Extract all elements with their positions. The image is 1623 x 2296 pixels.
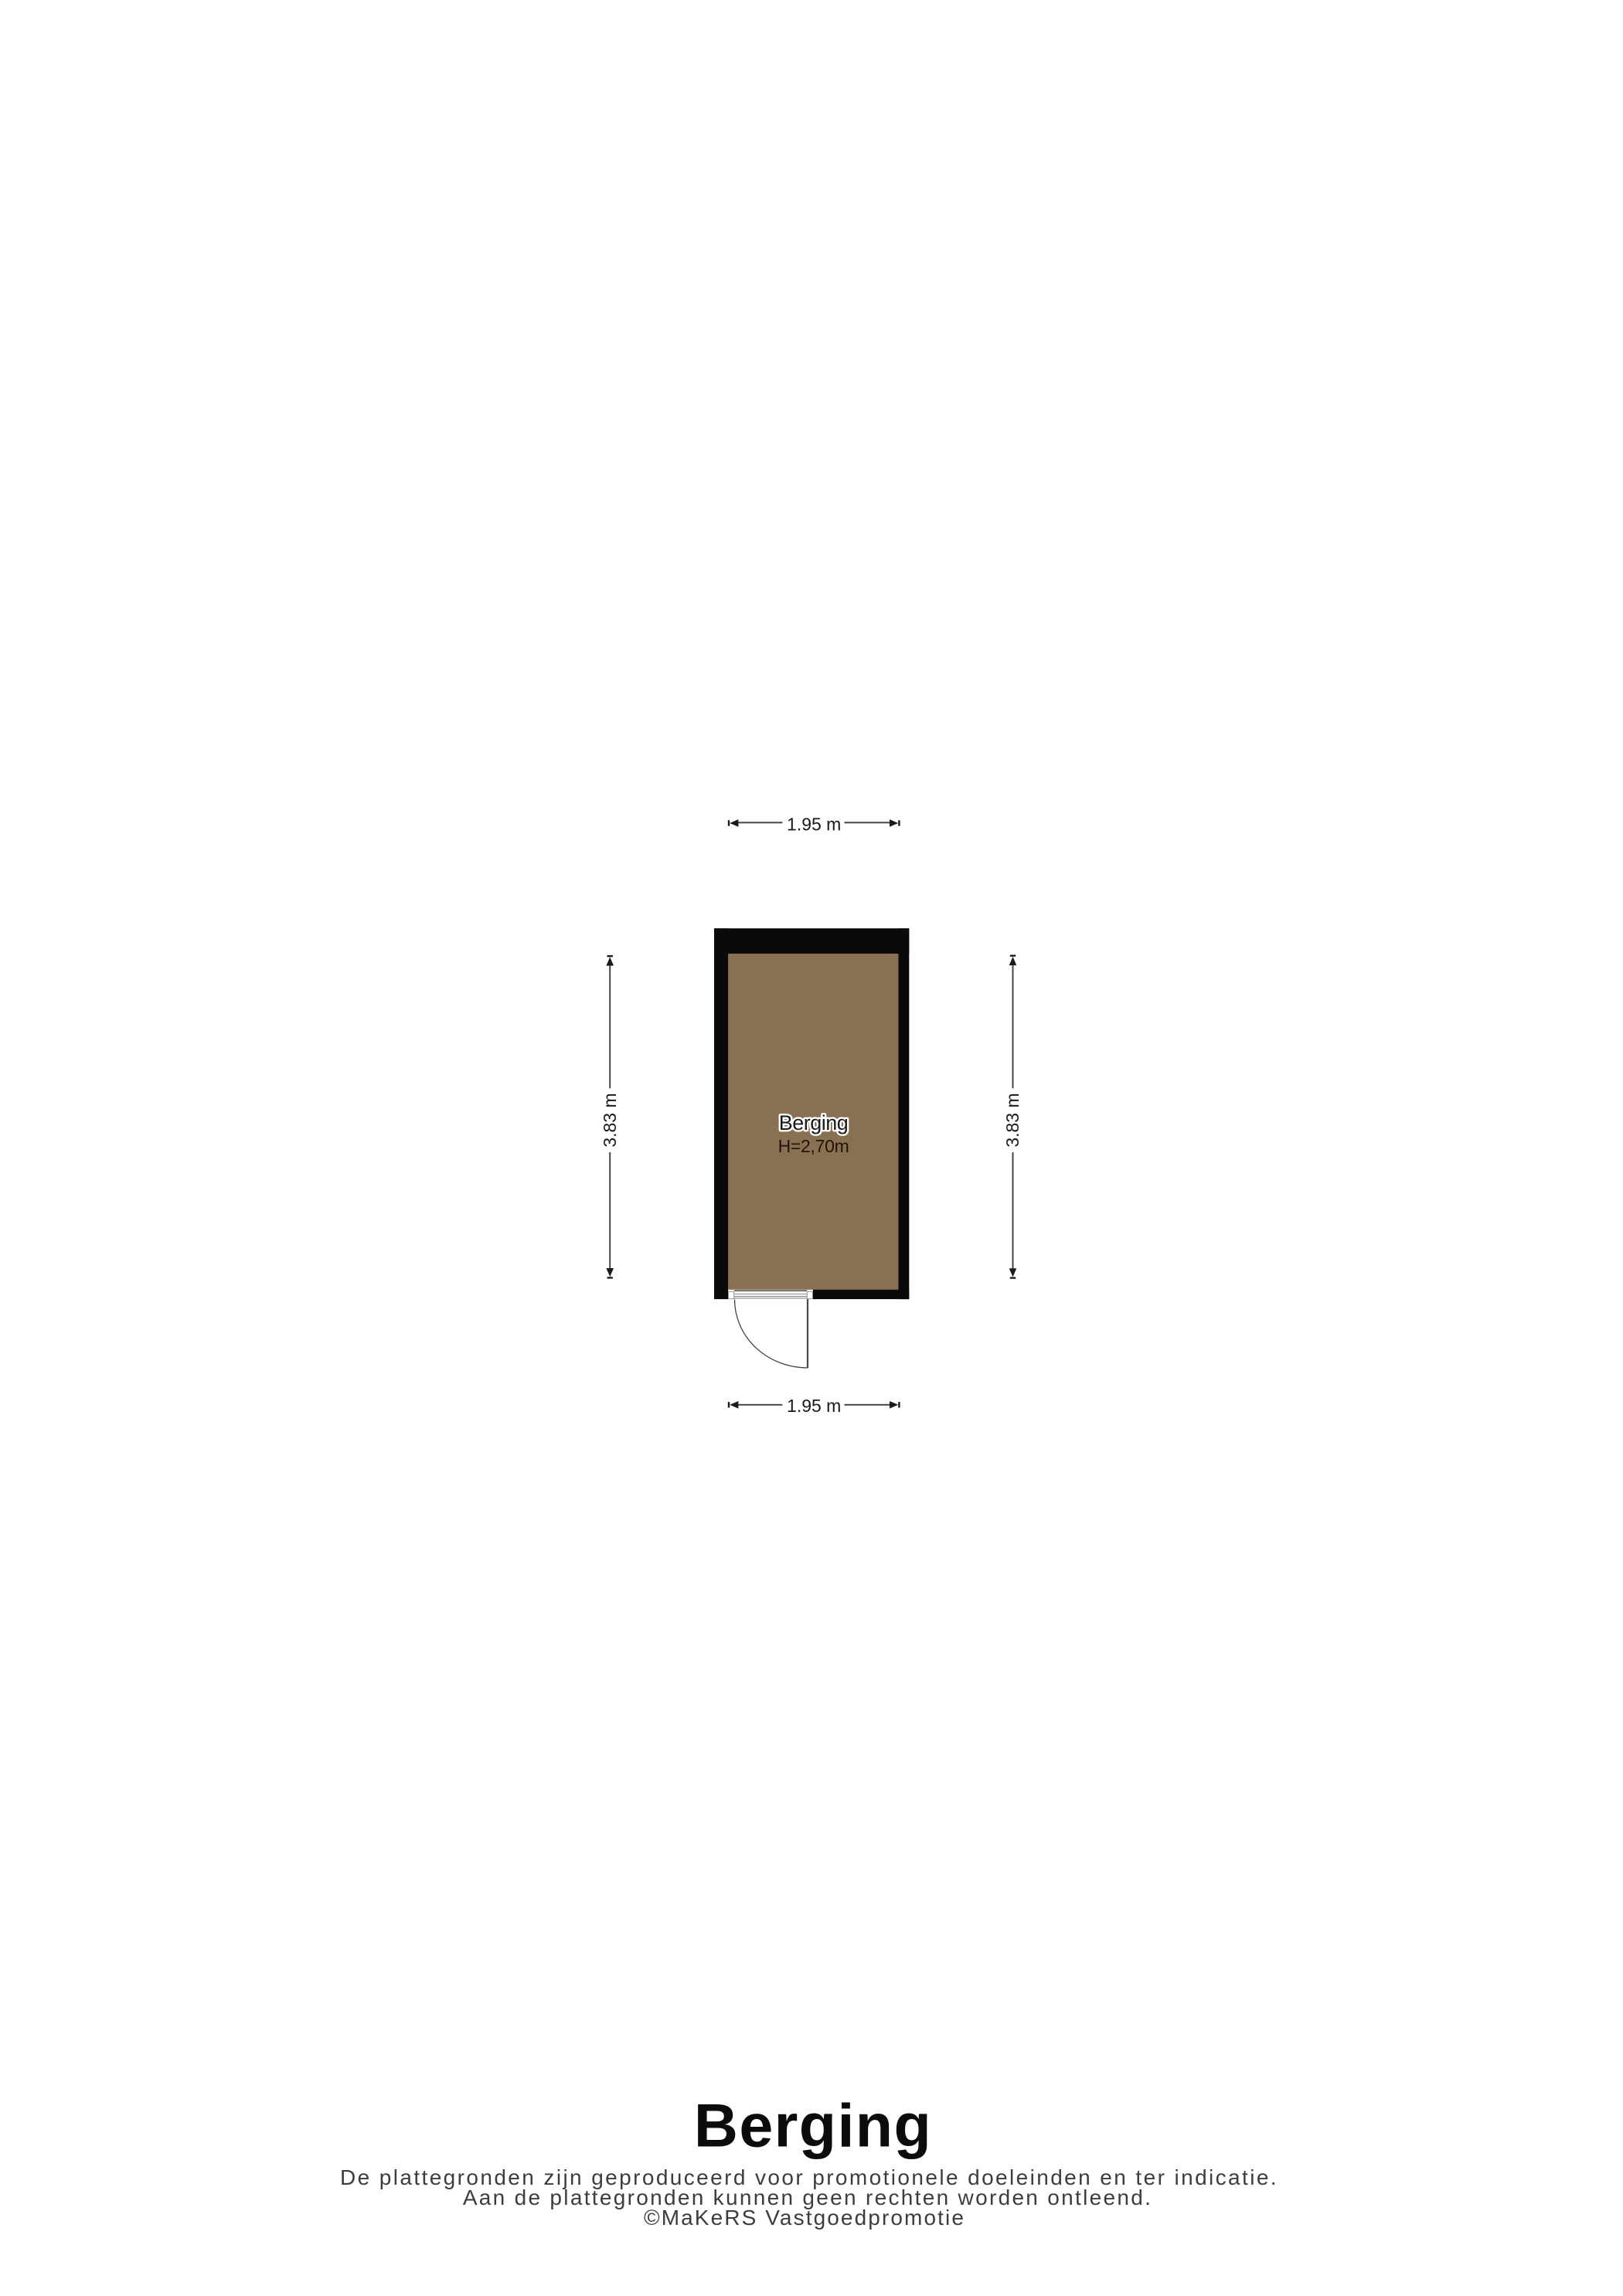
svg-text:1.95 m: 1.95 m	[787, 815, 841, 835]
svg-text:3.83 m: 3.83 m	[600, 1093, 620, 1147]
svg-text:©MaKeRS Vastgoedpromotie: ©MaKeRS Vastgoedpromotie	[644, 2206, 965, 2230]
svg-text:1.95 m: 1.95 m	[787, 1396, 841, 1416]
svg-text:H=2,70m: H=2,70m	[778, 1136, 849, 1156]
svg-text:3.83 m: 3.83 m	[1002, 1093, 1022, 1147]
svg-text:Berging: Berging	[694, 2090, 932, 2159]
svg-text:Berging: Berging	[779, 1111, 849, 1134]
